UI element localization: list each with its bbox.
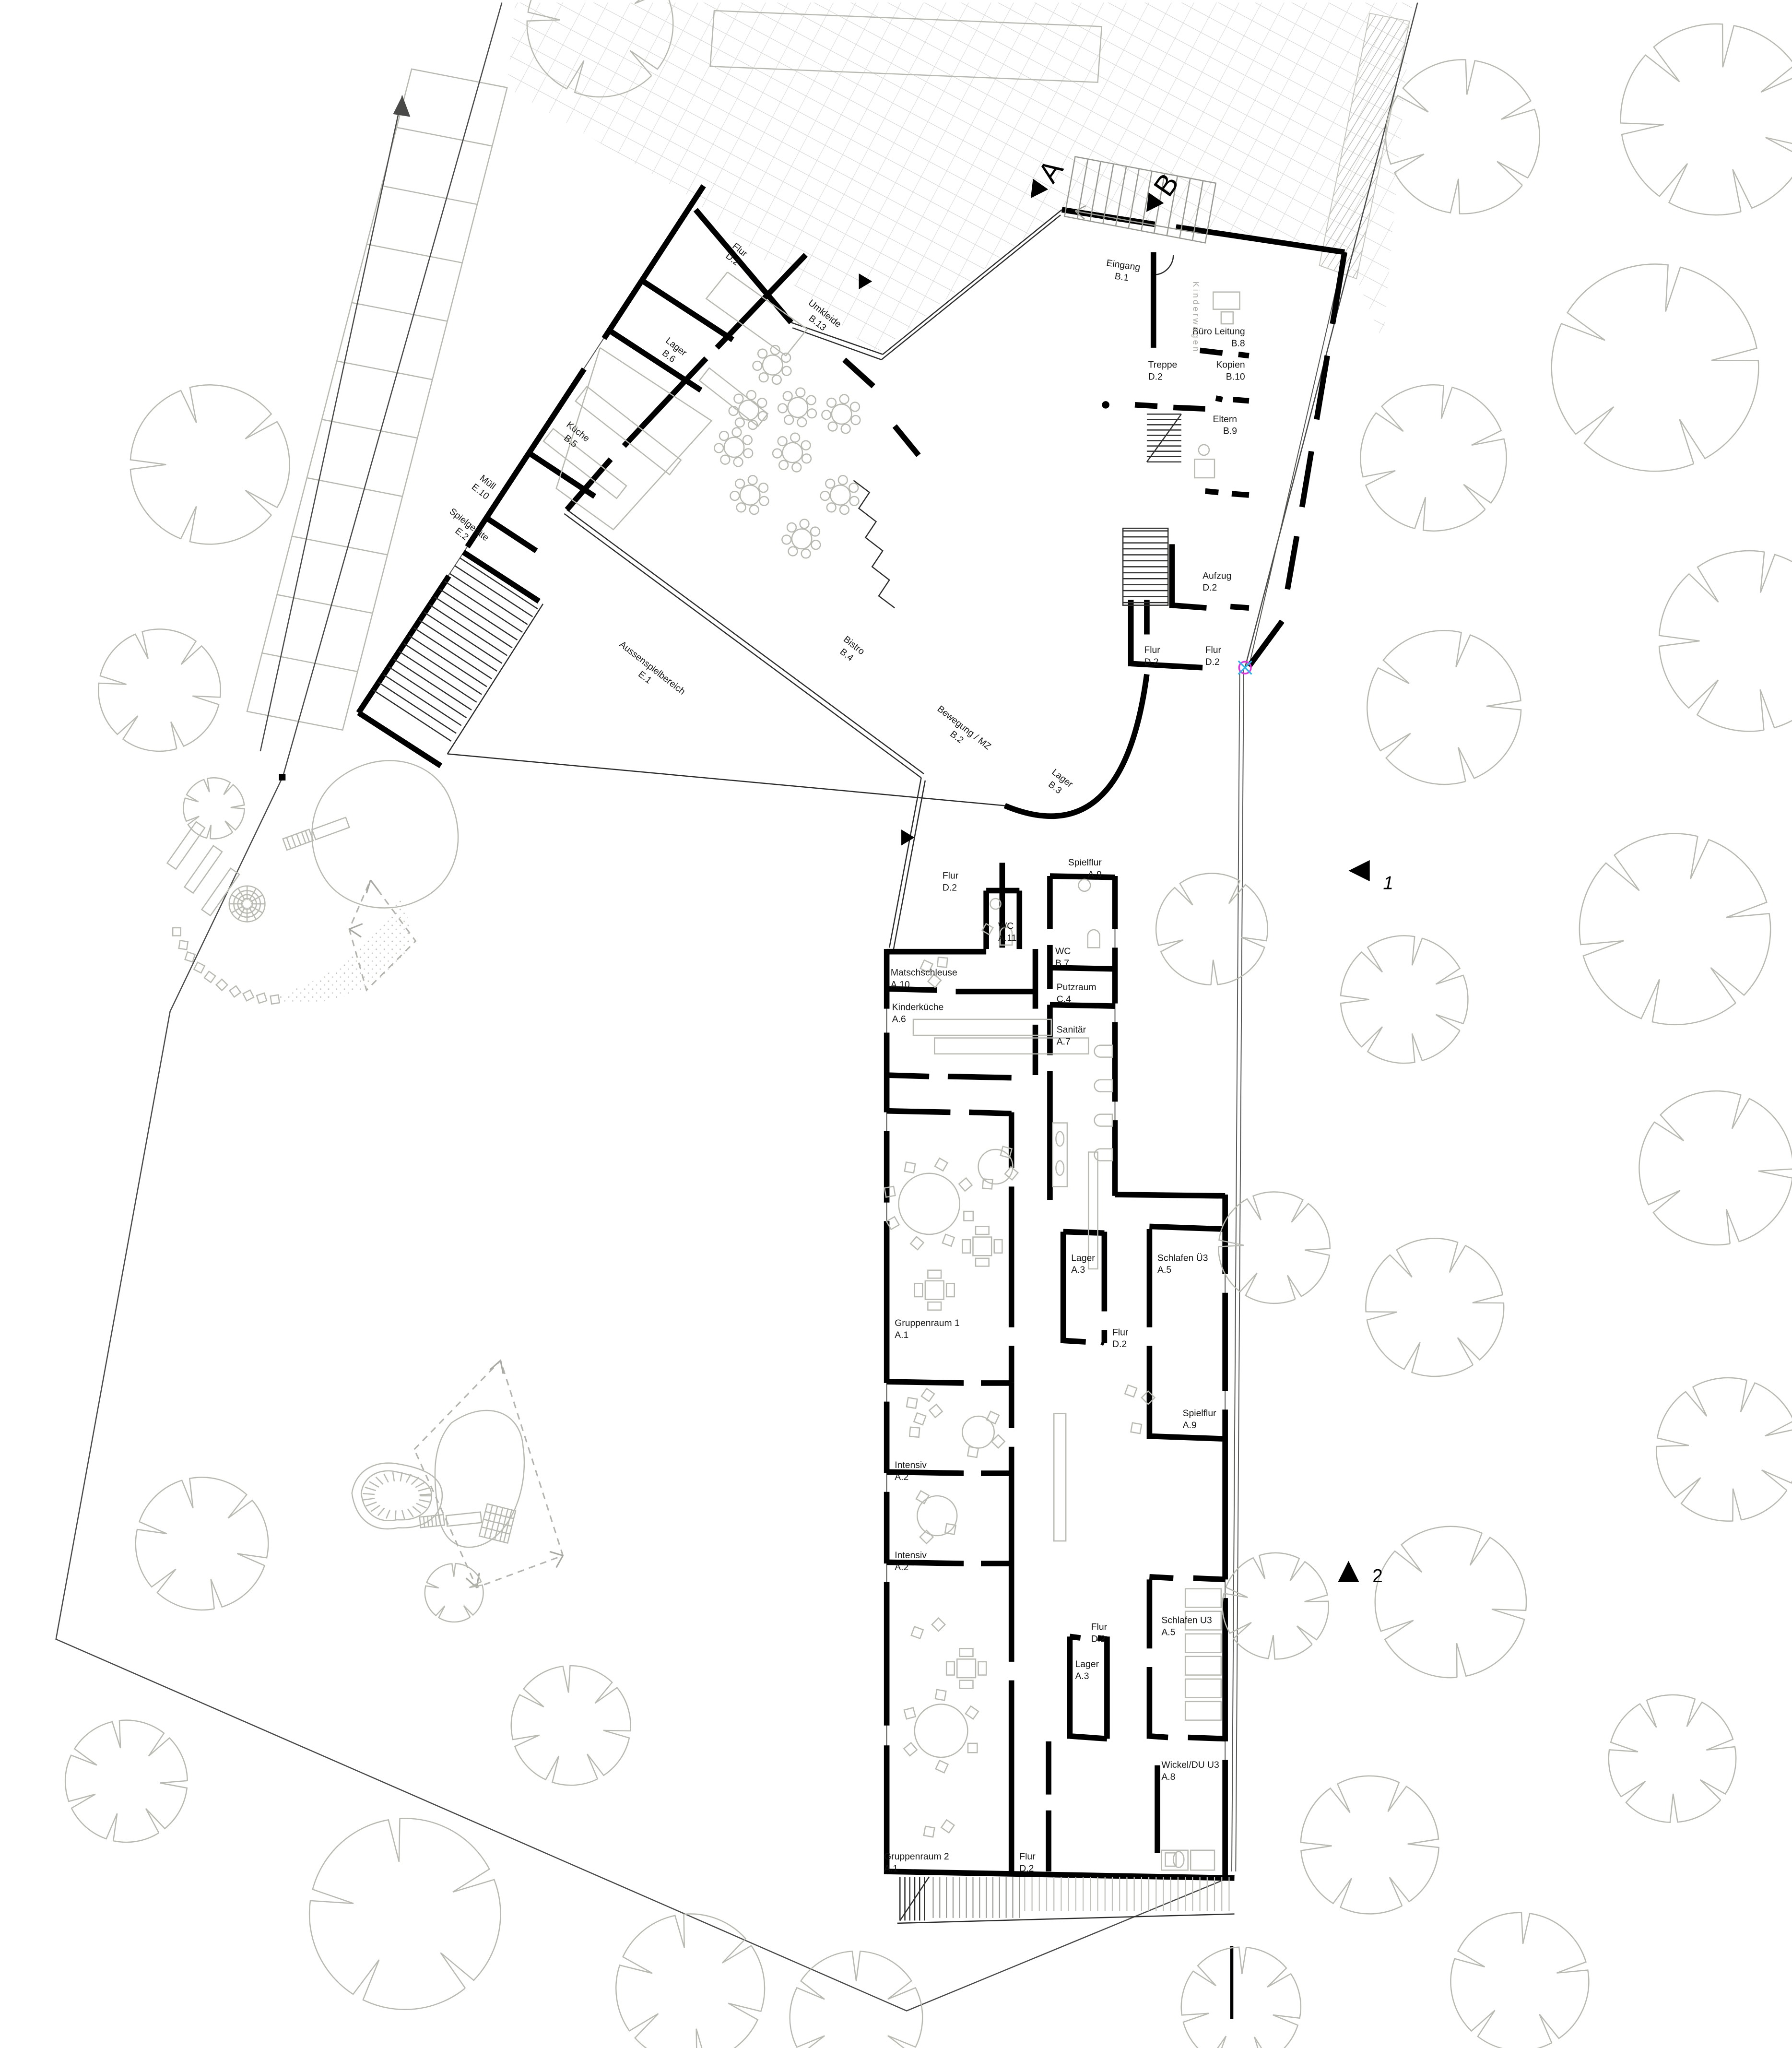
- plaza-paving: [507, 3, 1412, 355]
- room-label: KinderkücheA.6: [892, 1002, 944, 1024]
- table-with-chairs: [778, 388, 816, 427]
- room-label: FlurD.2: [1112, 1327, 1129, 1350]
- table-with-chairs: [773, 433, 811, 472]
- sand-area-upper: [312, 760, 458, 908]
- room-label: KücheB.5: [557, 419, 591, 453]
- room-label: FlurD.2: [943, 871, 959, 893]
- exterior-south-stairs: [897, 1877, 1235, 1923]
- boundary-point: [279, 774, 285, 781]
- table-with-chairs: [729, 391, 767, 429]
- tree-icon: [790, 1951, 923, 2048]
- tree-icon: [1156, 874, 1268, 985]
- tree-icon: [511, 1666, 631, 1785]
- room-label: KopienB.10: [1216, 359, 1245, 382]
- tree-icon: [1367, 630, 1521, 784]
- tree-icon: [183, 778, 244, 839]
- tree-icon: [1621, 24, 1792, 215]
- tree-icon: [1301, 1776, 1439, 1914]
- corridor-bench: [1088, 1152, 1097, 1268]
- svg-text:2: 2: [1372, 1566, 1383, 1586]
- tree-icon: [425, 1563, 483, 1622]
- climbing-web: [229, 886, 265, 922]
- view-marker-2: 2: [1338, 1561, 1382, 1586]
- tree-icon: [98, 629, 221, 751]
- room-label: SpielgeräteE.2: [440, 506, 491, 553]
- room-label: Gruppenraum 1A.1: [895, 1318, 960, 1340]
- bench: [283, 816, 350, 850]
- tree-icon: [1375, 1527, 1526, 1678]
- direction-arrow-icon: [901, 829, 915, 845]
- tree-icon: [1659, 551, 1792, 731]
- tree-icon: [136, 1477, 268, 1610]
- stepping-stones: [173, 928, 280, 1004]
- room-label: BistroB.4: [834, 634, 867, 666]
- view-arrow-icon: [1348, 860, 1369, 881]
- desk: [1213, 292, 1239, 309]
- seat-blocks: [167, 822, 239, 916]
- tree-icon: [1451, 1913, 1589, 2048]
- table-with-chairs: [753, 345, 791, 384]
- sand-path: [272, 897, 410, 1003]
- tree-icon: [1656, 1378, 1792, 1521]
- tree-icon: [1386, 59, 1540, 213]
- view-marker-1: 1: [1348, 860, 1393, 894]
- room-label: FlurD.2: [1019, 1851, 1036, 1874]
- room-label: LagerB.3: [1042, 767, 1075, 799]
- cots: [1185, 1589, 1221, 1720]
- sink-icon: [1078, 879, 1090, 891]
- tree-icon: [1366, 1238, 1504, 1376]
- tree-icon: [309, 1818, 500, 2009]
- stroller-area-label: Kinderwagen: [1191, 282, 1201, 354]
- playground-area: [167, 760, 563, 1587]
- room-label: FlurD.2: [1144, 645, 1160, 667]
- room-label: FlurD.2: [1205, 645, 1222, 667]
- room-label: Schlafen Ü3A.5: [1157, 1253, 1208, 1275]
- table-with-chairs: [782, 520, 820, 558]
- room-label: MatschschleuseA.10: [891, 968, 957, 990]
- svg-text:1: 1: [1383, 873, 1393, 894]
- bench: [420, 1511, 482, 1529]
- column: [1102, 401, 1109, 408]
- floor-plan-canvas: FlurD.2UmkleideB.13LagerB.6KücheB.5MüllE…: [0, 0, 1792, 2048]
- room-label: ElternB.9: [1213, 414, 1237, 437]
- table-with-chairs: [822, 394, 860, 433]
- sail-path-lower: [414, 1361, 563, 1587]
- room-label: WCB.7: [1055, 946, 1071, 969]
- survey-point: [1238, 661, 1252, 675]
- tree-icon: [616, 1914, 765, 2048]
- room-label: PutzraumC.4: [1057, 982, 1096, 1005]
- tree-icon: [1609, 1695, 1736, 1823]
- room-label: TreppeD.2: [1148, 359, 1178, 382]
- room-label: MüllE.10: [470, 472, 498, 502]
- tree-icon: [65, 1720, 187, 1842]
- room-label: LagerA.3: [1075, 1659, 1099, 1681]
- tree-icon: [1580, 834, 1770, 1025]
- drive-arrow-head: [393, 95, 410, 117]
- table-with-chairs: [821, 475, 859, 514]
- room-label: AussenspielbereichE.1: [610, 639, 687, 706]
- tree-icon: [1181, 1947, 1301, 2048]
- tree-icon: [1341, 935, 1468, 1063]
- tree-icon: [1218, 1192, 1330, 1303]
- folding-wall: [853, 481, 895, 608]
- table-with-chairs: [714, 428, 753, 467]
- furniture: [543, 272, 1240, 1870]
- tree-icon: [1639, 1091, 1792, 1245]
- room-label: EingangB.1: [1104, 258, 1141, 284]
- room-label: SanitärA.7: [1057, 1024, 1086, 1047]
- room-label: LagerA.3: [1071, 1253, 1095, 1275]
- room-label: Bewegung / MZB.2: [928, 704, 993, 762]
- floor-plan-page: FlurD.2UmkleideB.13LagerB.6KücheB.5MüllE…: [0, 0, 1792, 2048]
- room-label: AufzugD.2: [1203, 570, 1231, 593]
- play-platform: [479, 1504, 516, 1543]
- room-label: FlurD.2: [1091, 1622, 1108, 1644]
- tree-icon: [1360, 385, 1506, 531]
- bistro-tables: [714, 345, 860, 558]
- sink-icon: [990, 899, 1001, 909]
- room-label: Wickel/DU U3A.8: [1161, 1760, 1219, 1782]
- view-arrow-icon: [1338, 1561, 1359, 1582]
- path-arrows: [349, 880, 563, 1587]
- parking-lot: [247, 69, 507, 751]
- corridor-bench: [1054, 1414, 1066, 1541]
- room-label: SpielflurA.9: [1183, 1408, 1216, 1431]
- tree-icon: [130, 385, 290, 544]
- tree-icon: [1552, 264, 1759, 472]
- table-with-chairs: [730, 475, 768, 514]
- tree-icon: [1222, 1553, 1328, 1659]
